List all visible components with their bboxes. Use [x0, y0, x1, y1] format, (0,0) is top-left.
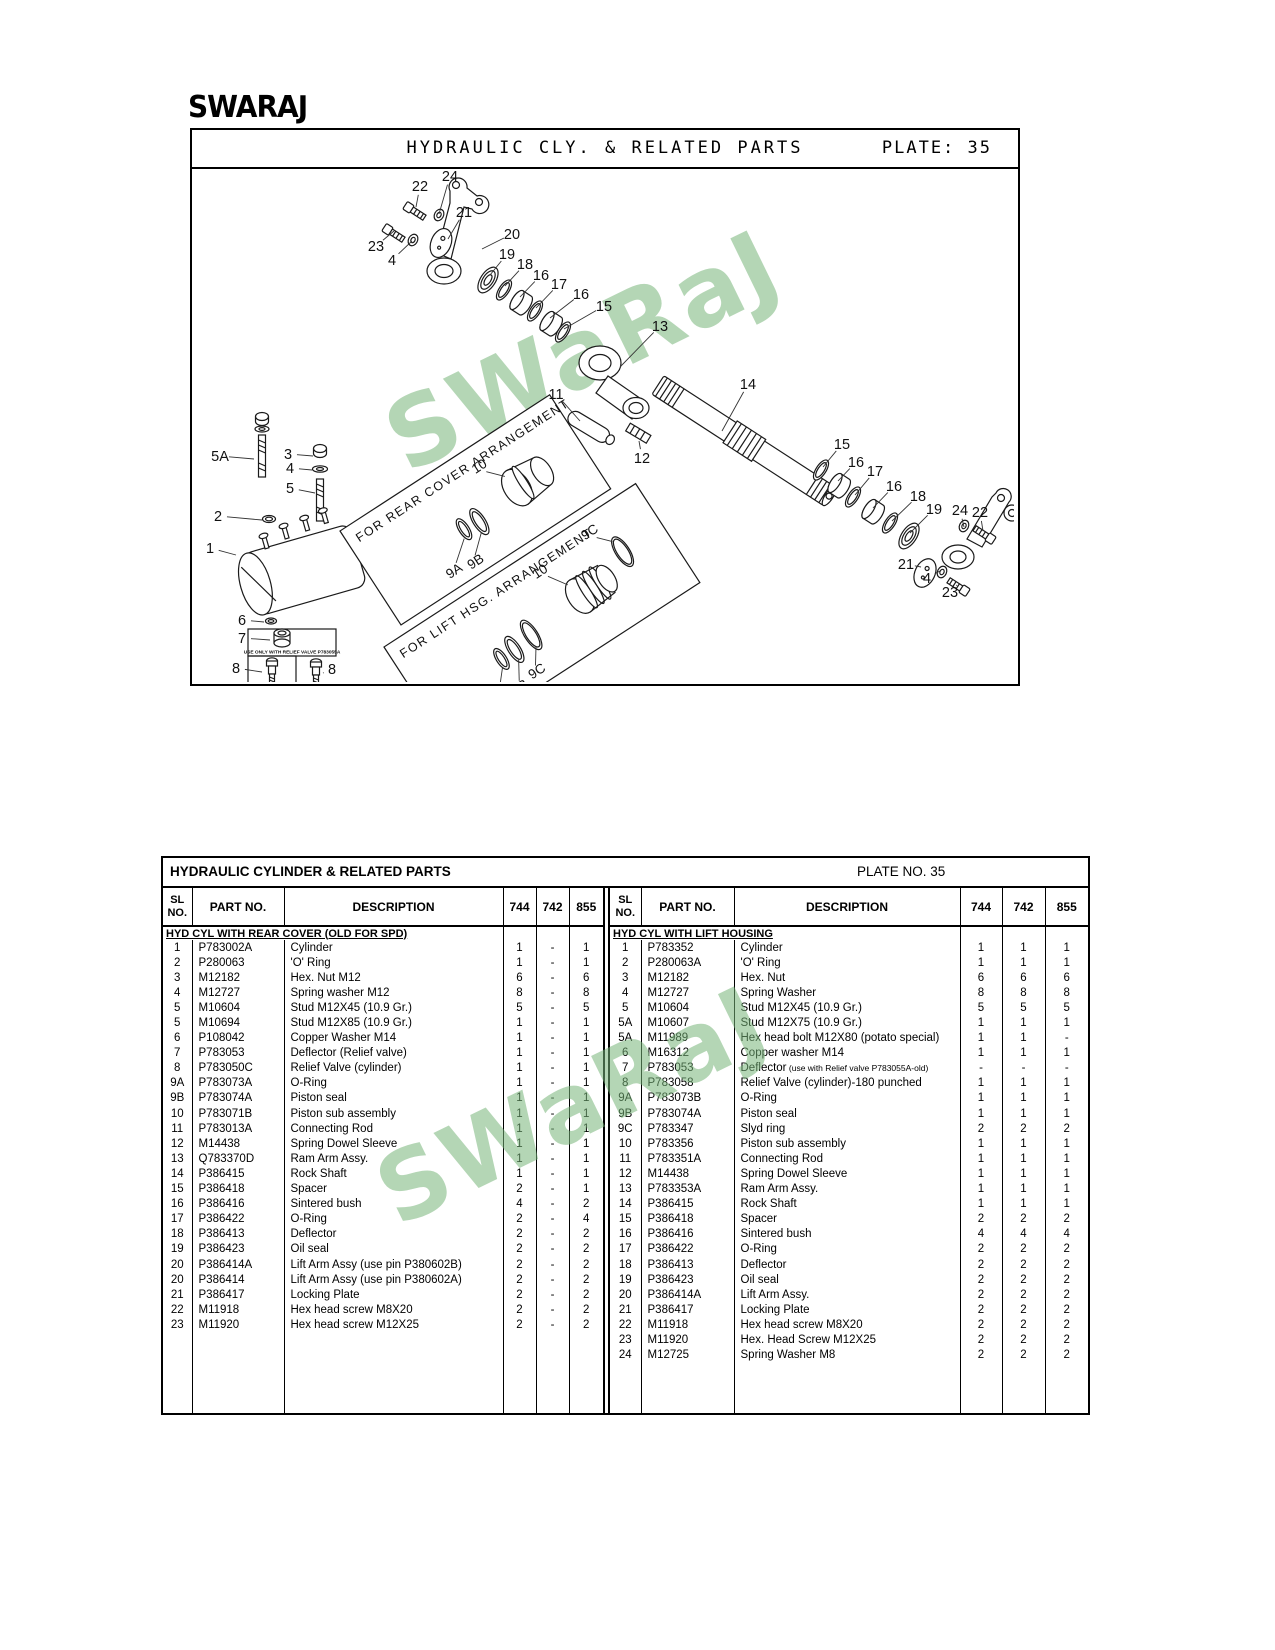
- qty-744-cell: 1: [960, 940, 1002, 955]
- description-cell: Ram Arm Assy.: [734, 1182, 960, 1197]
- sl-no-cell: 18: [163, 1227, 192, 1242]
- qty-855-cell: 1: [1045, 1106, 1088, 1121]
- qty-744-cell: 1: [503, 1046, 536, 1061]
- rock-shaft-14: [651, 374, 840, 509]
- description-cell: Stud M12X85 (10.9 Gr.): [284, 1015, 503, 1030]
- part-no-cell: P783074A: [641, 1106, 734, 1121]
- description-cell: Slyd ring: [734, 1121, 960, 1136]
- diagram-part-label: 23: [368, 239, 384, 255]
- qty-742-cell: -: [536, 1182, 569, 1197]
- bush-16r2: [859, 497, 887, 526]
- description-cell: Hex. Nut: [734, 970, 960, 985]
- description-cell: Spring Dowel Sleeve: [734, 1166, 960, 1181]
- qty-855-cell: 1: [569, 1076, 603, 1091]
- description-cell: O-Ring: [284, 1212, 503, 1227]
- sl-no-cell: 21: [610, 1302, 641, 1317]
- qty-742-cell: 2: [1002, 1348, 1045, 1363]
- qty-855-cell: 2: [569, 1317, 603, 1332]
- qty-744-cell: 2: [503, 1212, 536, 1227]
- description-cell: O-Ring: [734, 1242, 960, 1257]
- part-no-cell: P386416: [641, 1227, 734, 1242]
- qty-744-cell: 1: [503, 1151, 536, 1166]
- qty-744-cell: 2: [503, 1302, 536, 1317]
- diagram-part-label: 20: [504, 227, 520, 243]
- qty-855-cell: 1: [569, 1151, 603, 1166]
- part-no-cell: P783356: [641, 1136, 734, 1151]
- sl-no-cell: 3: [610, 970, 641, 985]
- qty-855-cell: 1: [1045, 1166, 1088, 1181]
- qty-742-cell: 4: [1002, 1227, 1045, 1242]
- qty-744-cell: 2: [503, 1257, 536, 1272]
- note-text: USE ONLY WITH RELIEF VALVE P783055A: [244, 650, 341, 656]
- exploded-diagram: SWaRaJ: [192, 169, 1014, 682]
- part-no-cell: P386423: [192, 1242, 284, 1257]
- qty-742-cell: 2: [1002, 1272, 1045, 1287]
- description-cell: Spring Dowel Sleeve: [284, 1136, 503, 1151]
- part-no-cell: P386414A: [192, 1257, 284, 1272]
- part-no-cell: M11920: [641, 1332, 734, 1347]
- description-cell: O-Ring: [734, 1091, 960, 1106]
- part-no-cell: P108042: [192, 1031, 284, 1046]
- qty-744-cell: 2: [960, 1272, 1002, 1287]
- part-no-cell: M12727: [192, 985, 284, 1000]
- sl-no-cell: 12: [610, 1166, 641, 1181]
- sl-no-cell: 17: [163, 1212, 192, 1227]
- qty-742-cell: -: [536, 1091, 569, 1106]
- sl-no-cell: 2: [163, 955, 192, 970]
- sl-no-cell: 8: [610, 1076, 641, 1091]
- sl-no-cell: 24: [610, 1348, 641, 1363]
- description-cell: Hex head screw M8X20: [284, 1302, 503, 1317]
- qty-744-cell: 2: [960, 1242, 1002, 1257]
- description-cell: Connecting Rod: [284, 1121, 503, 1136]
- description-cell: Cylinder: [734, 940, 960, 955]
- table-row: 9AP783073AO-Ring1-1: [163, 1076, 603, 1091]
- qty-744-cell: 2: [960, 1287, 1002, 1302]
- sl-no-cell: 11: [163, 1121, 192, 1136]
- filler-row: [163, 1332, 603, 1414]
- qty-855-cell: 2: [569, 1227, 603, 1242]
- sl-no-cell: 10: [610, 1136, 641, 1151]
- table-row: 5AM11989Hex head bolt M12X80 (potato spe…: [610, 1031, 1088, 1046]
- part-no-cell: P386422: [192, 1212, 284, 1227]
- qty-855-cell: 2: [1045, 1332, 1088, 1347]
- relief-valve-8a: [267, 658, 278, 682]
- description-cell: Relief Valve (cylinder): [284, 1061, 503, 1076]
- part-no-cell: P280063: [192, 955, 284, 970]
- qty-744-cell: 1: [503, 1015, 536, 1030]
- qty-742-cell: -: [1002, 1061, 1045, 1076]
- sl-no-cell: 16: [163, 1197, 192, 1212]
- qty-742-cell: 2: [1002, 1332, 1045, 1347]
- diagram-part-label: 16: [886, 479, 902, 495]
- part-no-cell: M10604: [192, 1000, 284, 1015]
- qty-855-cell: 1: [569, 1015, 603, 1030]
- qty-744-cell: 5: [960, 1000, 1002, 1015]
- deflector-7: [274, 629, 290, 647]
- table-row: 20P386414Lift Arm Assy (use pin P380602A…: [163, 1272, 603, 1287]
- qty-744-cell: 1: [960, 1046, 1002, 1061]
- qty-744-cell: 1: [960, 1151, 1002, 1166]
- plate-header: HYDRAULIC CLY. & RELATED PARTS PLATE: 35: [192, 130, 1018, 169]
- qty-744-cell: 1: [503, 940, 536, 955]
- diagram-part-label: 17: [867, 464, 883, 480]
- sl-no-cell: 23: [163, 1317, 192, 1332]
- qty-744-cell: 1: [503, 1121, 536, 1136]
- sl-no-cell: 20: [610, 1287, 641, 1302]
- qty-742-cell: 8: [1002, 985, 1045, 1000]
- qty-742-cell: -: [536, 1061, 569, 1076]
- qty-855-cell: 2: [569, 1257, 603, 1272]
- qty-742-cell: -: [536, 1197, 569, 1212]
- qty-744-cell: 1: [960, 955, 1002, 970]
- qty-742-cell: 1: [1002, 1151, 1045, 1166]
- sl-no-cell: 16: [610, 1227, 641, 1242]
- part-no-cell: P386413: [641, 1257, 734, 1272]
- description-cell: Locking Plate: [734, 1302, 960, 1317]
- diagram-part-label: 22: [412, 179, 428, 195]
- diagram-part-label: 8: [232, 661, 240, 677]
- part-no-cell: P386418: [641, 1212, 734, 1227]
- diagram-part-label: 12: [634, 451, 650, 467]
- table-row: 21P386417Locking Plate222: [610, 1302, 1088, 1317]
- sl-no-cell: 8: [163, 1061, 192, 1076]
- table-row: 22M11918Hex head screw M8X202-2: [163, 1302, 603, 1317]
- part-no-cell: M11989: [641, 1031, 734, 1046]
- callout-leader-line: [416, 195, 418, 207]
- qty-744-cell: 4: [960, 1227, 1002, 1242]
- qty-855-cell: 1: [569, 940, 603, 955]
- qty-855-cell: 2: [1045, 1272, 1088, 1287]
- part-no-cell: P783073A: [192, 1076, 284, 1091]
- qty-742-cell: 1: [1002, 1106, 1045, 1121]
- diagram-part-label: 19: [499, 247, 515, 263]
- qty-855-cell: 1: [569, 1106, 603, 1121]
- table-row: 11P783351AConnecting Rod111: [610, 1151, 1088, 1166]
- table-row: 3M12182Hex. Nut666: [610, 970, 1088, 985]
- diagram-part-label: 13: [652, 319, 668, 335]
- diagram-part-label: 15: [834, 437, 850, 453]
- qty-744-cell: 8: [503, 985, 536, 1000]
- qty-744-cell: 2: [960, 1212, 1002, 1227]
- description-cell: Sintered bush: [284, 1197, 503, 1212]
- part-no-cell: P783013A: [192, 1121, 284, 1136]
- section-title: HYD CYL WITH LIFT HOUSING: [610, 926, 960, 940]
- diagram-part-label: 4: [923, 571, 931, 587]
- qty-744-cell: 1: [503, 1136, 536, 1151]
- qty-744-cell: 1: [503, 1061, 536, 1076]
- description-cell: Copper washer M14: [734, 1046, 960, 1061]
- qty-744-cell: 5: [503, 1000, 536, 1015]
- description-cell: Stud M12X45 (10.9 Gr.): [284, 1000, 503, 1015]
- qty-855-cell: 1: [569, 1121, 603, 1136]
- table-row: 2P280063A'O' Ring111: [610, 955, 1088, 970]
- table-row: 15P386418Spacer2-1: [163, 1182, 603, 1197]
- part-no-cell: P783352: [641, 940, 734, 955]
- table-row: 1P783352Cylinder111: [610, 940, 1088, 955]
- qty-855-cell: 2: [1045, 1317, 1088, 1332]
- callout-leader-line: [399, 241, 412, 254]
- part-no-cell: P386418: [192, 1182, 284, 1197]
- sl-no-cell: 12: [163, 1136, 192, 1151]
- description-cell: Lift Arm Assy.: [734, 1287, 960, 1302]
- sl-no-cell: 5A: [610, 1031, 641, 1046]
- sl-no-cell: 19: [610, 1272, 641, 1287]
- diagram-part-label: 8: [328, 662, 336, 678]
- table-row: 14P386415Rock Shaft111: [610, 1197, 1088, 1212]
- qty-855-cell: 2: [1045, 1121, 1088, 1136]
- qty-744-cell: 1: [960, 1106, 1002, 1121]
- qty-744-cell: 2: [503, 1227, 536, 1242]
- diagram-part-label: 17: [551, 277, 567, 293]
- qty-855-cell: 1: [1045, 1076, 1088, 1091]
- description-cell: 'O' Ring: [284, 955, 503, 970]
- sl-no-cell: 22: [163, 1302, 192, 1317]
- parts-table-right: SL NO. PART NO. DESCRIPTION 744 742 855 …: [610, 888, 1088, 1413]
- part-no-cell: P280063A: [641, 955, 734, 970]
- diagram-part-label: 18: [517, 257, 533, 273]
- sl-no-cell: 5: [163, 1000, 192, 1015]
- nut-3: [314, 445, 327, 458]
- sl-no-cell: 5: [163, 1015, 192, 1030]
- part-no-cell: M14438: [192, 1136, 284, 1151]
- qty-744-cell: 1: [960, 1136, 1002, 1151]
- qty-855-cell: 2: [1045, 1348, 1088, 1363]
- qty-855-cell: 1: [569, 1031, 603, 1046]
- section-header-row: HYD CYL WITH LIFT HOUSING: [610, 926, 1088, 940]
- parts-table-left: SL NO. PART NO. DESCRIPTION 744 742 855 …: [163, 888, 603, 1414]
- callout-leader-line: [227, 517, 262, 520]
- qty-855-cell: 8: [1045, 985, 1088, 1000]
- qty-742-cell: 1: [1002, 1136, 1045, 1151]
- col-744: 744: [960, 888, 1002, 926]
- col-part-no: PART NO.: [192, 888, 284, 926]
- qty-744-cell: 2: [503, 1182, 536, 1197]
- qty-744-cell: 6: [503, 970, 536, 985]
- callout-leader-line: [823, 451, 836, 467]
- washer-4c: [313, 466, 328, 472]
- qty-855-cell: 2: [569, 1272, 603, 1287]
- callout-leader-line: [639, 441, 640, 449]
- table-row: 6M16312Copper washer M14111: [610, 1046, 1088, 1061]
- col-part-no: PART NO.: [641, 888, 734, 926]
- qty-742-cell: -: [536, 1272, 569, 1287]
- col-855: 855: [569, 888, 603, 926]
- description-small-note: (use with Relief valve P783055A-old): [787, 1063, 929, 1073]
- sl-no-cell: 9B: [610, 1106, 641, 1121]
- qty-742-cell: 1: [1002, 1015, 1045, 1030]
- qty-742-cell: 2: [1002, 1121, 1045, 1136]
- part-no-cell: P386423: [641, 1272, 734, 1287]
- qty-742-cell: -: [536, 1121, 569, 1136]
- col-sl-no: SL NO.: [610, 888, 641, 926]
- part-no-cell: P386414: [192, 1272, 284, 1287]
- table-row: 12M14438Spring Dowel Sleeve1-1: [163, 1136, 603, 1151]
- sl-no-cell: 2: [610, 955, 641, 970]
- qty-744-cell: -: [960, 1061, 1002, 1076]
- diagram-part-label: 4: [388, 253, 396, 269]
- table-divider: [603, 888, 610, 1413]
- table-row: 7P783053Deflector (Relief valve)1-1: [163, 1046, 603, 1061]
- part-no-cell: P783071B: [192, 1106, 284, 1121]
- sl-no-cell: 14: [163, 1166, 192, 1181]
- table-row: 17P386422O-Ring2-4: [163, 1212, 603, 1227]
- qty-855-cell: 1: [1045, 1197, 1088, 1212]
- col-744: 744: [503, 888, 536, 926]
- description-cell: Ram Arm Assy.: [284, 1151, 503, 1166]
- sl-no-cell: 6: [163, 1031, 192, 1046]
- diagram-part-label: 16: [533, 268, 549, 284]
- qty-742-cell: -: [536, 1046, 569, 1061]
- qty-742-cell: -: [536, 1242, 569, 1257]
- qty-744-cell: 1: [503, 1076, 536, 1091]
- qty-742-cell: 1: [1002, 1197, 1045, 1212]
- part-no-cell: P386417: [192, 1287, 284, 1302]
- part-no-cell: M10604: [641, 1000, 734, 1015]
- table-row: 20P386414ALift Arm Assy.222: [610, 1287, 1088, 1302]
- description-cell: Rock Shaft: [734, 1197, 960, 1212]
- table-row: 9BP783074APiston seal1-1: [163, 1091, 603, 1106]
- description-cell: Copper Washer M14: [284, 1031, 503, 1046]
- part-no-cell: M11920: [192, 1317, 284, 1332]
- relief-valve-8b: [311, 659, 322, 682]
- qty-744-cell: 1: [960, 1015, 1002, 1030]
- qty-855-cell: 1: [569, 1166, 603, 1181]
- table-row: 23M11920Hex head screw M12X252-2: [163, 1317, 603, 1332]
- qty-855-cell: 2: [1045, 1212, 1088, 1227]
- lift-arm-left: [427, 178, 489, 284]
- callout-leader-line: [251, 621, 264, 622]
- description-cell: Hex head screw M12X25: [284, 1317, 503, 1332]
- part-no-cell: P783002A: [192, 940, 284, 955]
- table-row: 4M12727Spring washer M128-8: [163, 985, 603, 1000]
- description-cell: Piston sub assembly: [734, 1136, 960, 1151]
- qty-855-cell: 1: [1045, 1015, 1088, 1030]
- qty-742-cell: 2: [1002, 1242, 1045, 1257]
- qty-744-cell: 1: [503, 1031, 536, 1046]
- table-row: 20P386414ALift Arm Assy (use pin P380602…: [163, 1257, 603, 1272]
- qty-855-cell: -: [1045, 1061, 1088, 1076]
- qty-855-cell: 1: [569, 1046, 603, 1061]
- description-cell: Deflector (use with Relief valve P783055…: [734, 1061, 960, 1076]
- table-row: 7P783053Deflector (use with Relief valve…: [610, 1061, 1088, 1076]
- qty-855-cell: 1: [1045, 1151, 1088, 1166]
- qty-742-cell: -: [536, 985, 569, 1000]
- diagram-part-label: 21: [898, 557, 914, 573]
- qty-744-cell: 1: [503, 1166, 536, 1181]
- col-description: DESCRIPTION: [734, 888, 960, 926]
- description-cell: Oil seal: [284, 1242, 503, 1257]
- diagram-part-label: 22: [972, 505, 988, 521]
- table-title: HYDRAULIC CYLINDER & RELATED PARTS: [170, 858, 451, 886]
- callout-leader-line: [229, 457, 254, 459]
- table-row: 4M12727Spring Washer888: [610, 985, 1088, 1000]
- qty-855-cell: 2: [569, 1302, 603, 1317]
- diagram-part-label: 5A: [211, 449, 229, 465]
- qty-744-cell: 1: [503, 1106, 536, 1121]
- part-no-cell: P783074A: [192, 1091, 284, 1106]
- part-no-cell: P386413: [192, 1227, 284, 1242]
- description-cell: Spring washer M12: [284, 985, 503, 1000]
- part-no-cell: M12182: [641, 970, 734, 985]
- table-row: 1P783002ACylinder1-1: [163, 940, 603, 955]
- table-row: 5M10694Stud M12X85 (10.9 Gr.)1-1: [163, 1015, 603, 1030]
- description-cell: Deflector: [284, 1227, 503, 1242]
- sl-no-cell: 6: [610, 1046, 641, 1061]
- diagram-part-label: 14: [740, 377, 756, 393]
- qty-744-cell: 1: [960, 1076, 1002, 1091]
- diagram-part-label: 24: [952, 503, 968, 519]
- filler-row: [610, 1363, 1088, 1413]
- sl-no-cell: 14: [610, 1197, 641, 1212]
- table-row: 19P386423Oil seal222: [610, 1272, 1088, 1287]
- description-cell: Deflector (Relief valve): [284, 1046, 503, 1061]
- qty-744-cell: 1: [960, 1031, 1002, 1046]
- qty-742-cell: -: [536, 970, 569, 985]
- part-no-cell: M14438: [641, 1166, 734, 1181]
- description-cell: Spring Washer M8: [734, 1348, 960, 1363]
- qty-742-cell: -: [536, 1000, 569, 1015]
- part-no-cell: P783053: [641, 1061, 734, 1076]
- o-ring-2: [263, 516, 276, 523]
- sl-no-cell: 15: [163, 1182, 192, 1197]
- qty-744-cell: 1: [503, 1091, 536, 1106]
- part-no-cell: M10694: [192, 1015, 284, 1030]
- sl-no-cell: 9C: [610, 1121, 641, 1136]
- qty-742-cell: -: [536, 1106, 569, 1121]
- description-cell: Rock Shaft: [284, 1166, 503, 1181]
- qty-742-cell: -: [536, 1015, 569, 1030]
- qty-742-cell: -: [536, 1287, 569, 1302]
- qty-742-cell: -: [536, 1166, 569, 1181]
- table-row: 18P386413Deflector222: [610, 1257, 1088, 1272]
- part-no-cell: P386422: [641, 1242, 734, 1257]
- qty-744-cell: 2: [960, 1348, 1002, 1363]
- qty-855-cell: 1: [569, 955, 603, 970]
- callout-leader-line: [251, 639, 270, 640]
- qty-855-cell: 6: [569, 970, 603, 985]
- table-row: 11P783013AConnecting Rod1-1: [163, 1121, 603, 1136]
- table-row: 5M10604Stud M12X45 (10.9 Gr.)5-5: [163, 1000, 603, 1015]
- sl-no-cell: 15: [610, 1212, 641, 1227]
- qty-742-cell: 1: [1002, 1091, 1045, 1106]
- sl-no-cell: 9A: [163, 1076, 192, 1091]
- callout-leader-line: [299, 469, 312, 470]
- screw-23: [382, 223, 406, 243]
- part-no-cell: M11918: [641, 1317, 734, 1332]
- parts-table-panel: SWaRaJ HYDRAULIC CYLINDER & RELATED PART…: [161, 856, 1090, 1415]
- sl-no-cell: 7: [163, 1046, 192, 1061]
- table-row: 2P280063'O' Ring1-1: [163, 955, 603, 970]
- qty-744-cell: 1: [503, 955, 536, 970]
- description-cell: Piston sub assembly: [284, 1106, 503, 1121]
- qty-742-cell: 1: [1002, 955, 1045, 970]
- part-no-cell: M16312: [641, 1046, 734, 1061]
- qty-744-cell: 1: [960, 1197, 1002, 1212]
- table-row: 9BP783074APiston seal111: [610, 1106, 1088, 1121]
- table-row: 8P783050CRelief Valve (cylinder)1-1: [163, 1061, 603, 1076]
- sl-no-cell: 20: [163, 1257, 192, 1272]
- qty-855-cell: 1: [1045, 940, 1088, 955]
- table-row: 23M11920Hex. Head Screw M12X25222: [610, 1332, 1088, 1347]
- qty-744-cell: 2: [960, 1317, 1002, 1332]
- table-row: 10P783356Piston sub assembly111: [610, 1136, 1088, 1151]
- sl-no-cell: 5: [610, 1000, 641, 1015]
- deflector-18: [494, 278, 515, 303]
- qty-742-cell: 1: [1002, 940, 1045, 955]
- qty-855-cell: 1: [569, 1061, 603, 1076]
- qty-855-cell: 2: [1045, 1302, 1088, 1317]
